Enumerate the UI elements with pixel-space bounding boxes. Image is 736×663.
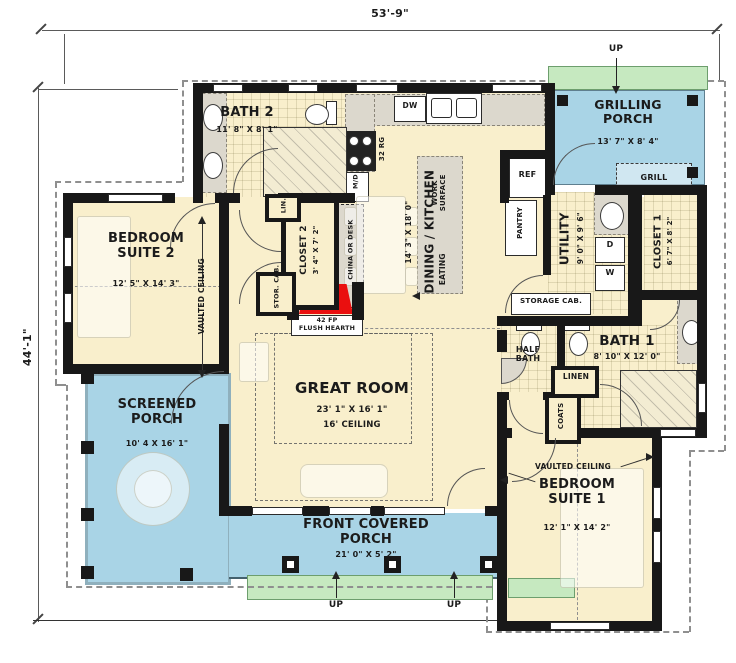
coats-label: COATS bbox=[558, 386, 566, 446]
porch-post bbox=[81, 371, 94, 384]
room-dims-closet2: 3' 4" X 7' 2" bbox=[313, 190, 321, 310]
dim-line-left bbox=[38, 88, 39, 622]
wall bbox=[219, 424, 229, 516]
vaulted-label-bedroom1: VAULTED CEILING bbox=[518, 463, 628, 471]
dw-label: DW bbox=[396, 102, 424, 110]
porch-post bbox=[687, 95, 698, 106]
wall bbox=[501, 392, 509, 400]
lin-label: LIN. bbox=[280, 176, 287, 236]
room-label-great: GREAT ROOM bbox=[272, 380, 432, 397]
up-arrow-head bbox=[612, 86, 620, 94]
window bbox=[660, 429, 696, 437]
room-dims-kitchen: 14' 3" X 18' 0" bbox=[405, 152, 413, 312]
vault-arrow-head bbox=[500, 476, 508, 484]
wall bbox=[595, 185, 707, 195]
window bbox=[384, 507, 445, 515]
overhang-line bbox=[182, 81, 184, 182]
burner bbox=[349, 136, 359, 146]
vault-arrow-head bbox=[646, 453, 654, 461]
overhang-line bbox=[55, 182, 57, 385]
floor-plan: 53'-9" 44'-1" bbox=[0, 0, 736, 663]
room-dims-bedroom1: 12' 1" X 14' 2" bbox=[517, 524, 637, 533]
window bbox=[288, 84, 318, 92]
dim-tick bbox=[35, 23, 46, 34]
wall bbox=[497, 428, 512, 438]
overhang-line bbox=[689, 451, 691, 632]
hearth-label-1: 42 FP bbox=[291, 317, 363, 324]
storagecab-label: STORAGE CAB. bbox=[513, 297, 589, 305]
up-label: UP bbox=[321, 600, 351, 610]
room-dims-bedroom2: 12' 5" X 14' 3" bbox=[86, 280, 206, 289]
wall bbox=[497, 438, 507, 630]
porch-post bbox=[81, 566, 94, 579]
wall bbox=[193, 83, 203, 203]
kitchen-ceiling-line bbox=[355, 328, 500, 329]
vaulted-label-bedroom2: VAULTED CEILING bbox=[198, 241, 206, 351]
room-dims-closet1: 6' 7" X 8' 2" bbox=[667, 186, 675, 296]
porch-table-top bbox=[134, 470, 172, 508]
porch-post bbox=[81, 508, 94, 521]
wall bbox=[63, 193, 73, 374]
sofa bbox=[300, 464, 388, 498]
wall bbox=[557, 326, 565, 370]
window bbox=[698, 383, 706, 413]
room-label-closet2: CLOSET 2 bbox=[299, 190, 309, 310]
bath2-sink bbox=[203, 152, 223, 179]
room-label-screened: SCREENED PORCH bbox=[112, 398, 202, 427]
room-dims-bath1: 8' 10" X 12' 0" bbox=[572, 353, 682, 362]
room-dims-screened: 10' 4 X 16' 1" bbox=[97, 440, 217, 449]
vault-arrow-head bbox=[198, 370, 206, 378]
room-label-halfbath: HALF BATH bbox=[505, 346, 551, 364]
up-arrow-head bbox=[332, 571, 340, 579]
window bbox=[213, 84, 243, 92]
grill-label: GRILL bbox=[616, 174, 692, 183]
window bbox=[64, 293, 72, 323]
room-dims-front: 21' 0" X 5' 2" bbox=[296, 551, 436, 560]
dim-left-label: 44'-1" bbox=[22, 317, 34, 377]
china-label: CHINA OR DESK bbox=[347, 190, 354, 310]
steps-dash bbox=[248, 586, 492, 588]
eating-label: EATING bbox=[439, 239, 447, 299]
vault-arrow-head bbox=[198, 216, 206, 224]
dim-line-top bbox=[42, 30, 720, 31]
room-dims-utility: 9' 0" X 9' 6" bbox=[577, 178, 585, 298]
window bbox=[64, 237, 72, 267]
porch-post bbox=[557, 95, 568, 106]
ref-label: REF bbox=[509, 171, 546, 180]
window bbox=[653, 531, 661, 563]
overhang-line bbox=[55, 384, 66, 386]
window bbox=[653, 487, 661, 519]
work-surface-label: WORK SURFACE bbox=[432, 169, 448, 217]
room-label-bath2: BATH 2 bbox=[192, 106, 302, 121]
dim-ext bbox=[38, 89, 178, 90]
overhang-line bbox=[724, 81, 726, 451]
dim-ext bbox=[719, 34, 720, 80]
up-arrow-head bbox=[450, 571, 458, 579]
pantry-label: PANTRY bbox=[517, 193, 525, 253]
dim-ext bbox=[64, 34, 65, 84]
wall bbox=[219, 506, 252, 516]
sink-basin bbox=[456, 98, 477, 118]
wall bbox=[500, 150, 509, 203]
up-label: UP bbox=[601, 44, 631, 54]
wall bbox=[497, 316, 642, 326]
wall bbox=[303, 506, 329, 516]
room-label-grilling: GRILLING PORCH bbox=[586, 98, 670, 126]
overhang-line bbox=[66, 385, 68, 587]
range-label: 32 RG bbox=[379, 119, 387, 179]
window bbox=[550, 622, 610, 630]
burner bbox=[362, 156, 372, 166]
window bbox=[329, 507, 371, 515]
wall bbox=[371, 506, 384, 516]
utility-sink bbox=[600, 202, 624, 230]
hearth-label-2: FLUSH HEARTH bbox=[291, 325, 363, 332]
wall bbox=[219, 193, 229, 374]
window bbox=[356, 84, 398, 92]
room-dims-bath2: 11' 8" X 8' 1" bbox=[192, 126, 302, 135]
dim-top-label: 53'-9" bbox=[350, 8, 430, 20]
up-label: UP bbox=[439, 600, 469, 610]
dim-ext bbox=[33, 620, 503, 621]
room-label-bath1: BATH 1 bbox=[572, 334, 682, 349]
porch-post bbox=[480, 556, 497, 573]
room-label-bedroom2: BEDROOM SUITE 2 bbox=[101, 232, 191, 261]
wall bbox=[543, 195, 551, 275]
porch-post bbox=[180, 568, 193, 581]
up-arrow-line bbox=[454, 579, 455, 598]
armchair bbox=[239, 342, 269, 382]
room-label-front: FRONT COVERED PORCH bbox=[296, 518, 436, 547]
room-dims-grilling: 13' 7" X 8' 4" bbox=[576, 138, 680, 147]
room-label-utility: UTILITY bbox=[558, 179, 571, 299]
steps-top bbox=[548, 66, 708, 90]
window bbox=[492, 84, 542, 92]
dim-tick bbox=[711, 23, 722, 34]
room-label-closet1: CLOSET 1 bbox=[652, 187, 663, 297]
porch-post bbox=[81, 441, 94, 454]
up-arrow-line bbox=[616, 58, 617, 88]
room-dims-great: 23' 1" X 16' 1" bbox=[272, 406, 432, 416]
room-label-bedroom1: BEDROOM SUITE 1 bbox=[532, 478, 622, 507]
up-arrow-line bbox=[336, 579, 337, 598]
room-ceiling-great: 16' CEILING bbox=[272, 421, 432, 431]
dining-table bbox=[356, 196, 406, 294]
toilet-bowl bbox=[305, 104, 329, 125]
dryer-label: D bbox=[597, 241, 623, 250]
sink-basin bbox=[431, 98, 452, 118]
wall bbox=[628, 192, 642, 316]
linen-label: LINEN bbox=[557, 373, 595, 381]
window bbox=[252, 507, 303, 515]
window bbox=[108, 194, 163, 202]
overhang-line bbox=[55, 181, 182, 183]
overhang-line bbox=[689, 450, 724, 452]
overhang-line bbox=[486, 631, 689, 633]
burner bbox=[362, 136, 372, 146]
washer-label: W bbox=[597, 269, 623, 278]
storcab-label: STOR. CAB. bbox=[273, 264, 280, 310]
